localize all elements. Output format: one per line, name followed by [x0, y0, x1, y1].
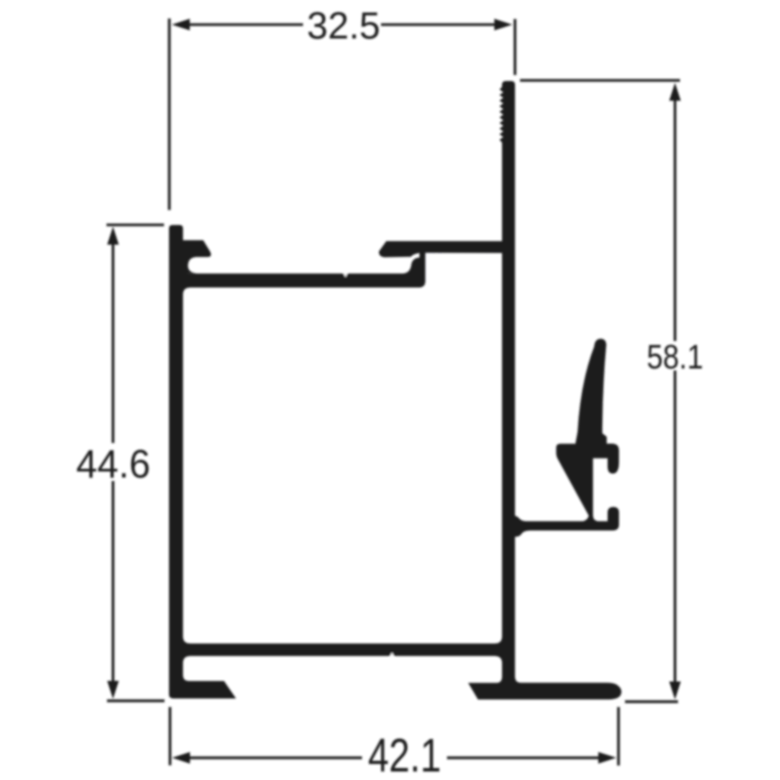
svg-text:44.6: 44.6	[76, 443, 150, 487]
svg-text:32.5: 32.5	[307, 4, 380, 47]
svg-text:42.1: 42.1	[368, 728, 441, 780]
svg-text:58.1: 58.1	[647, 339, 704, 377]
